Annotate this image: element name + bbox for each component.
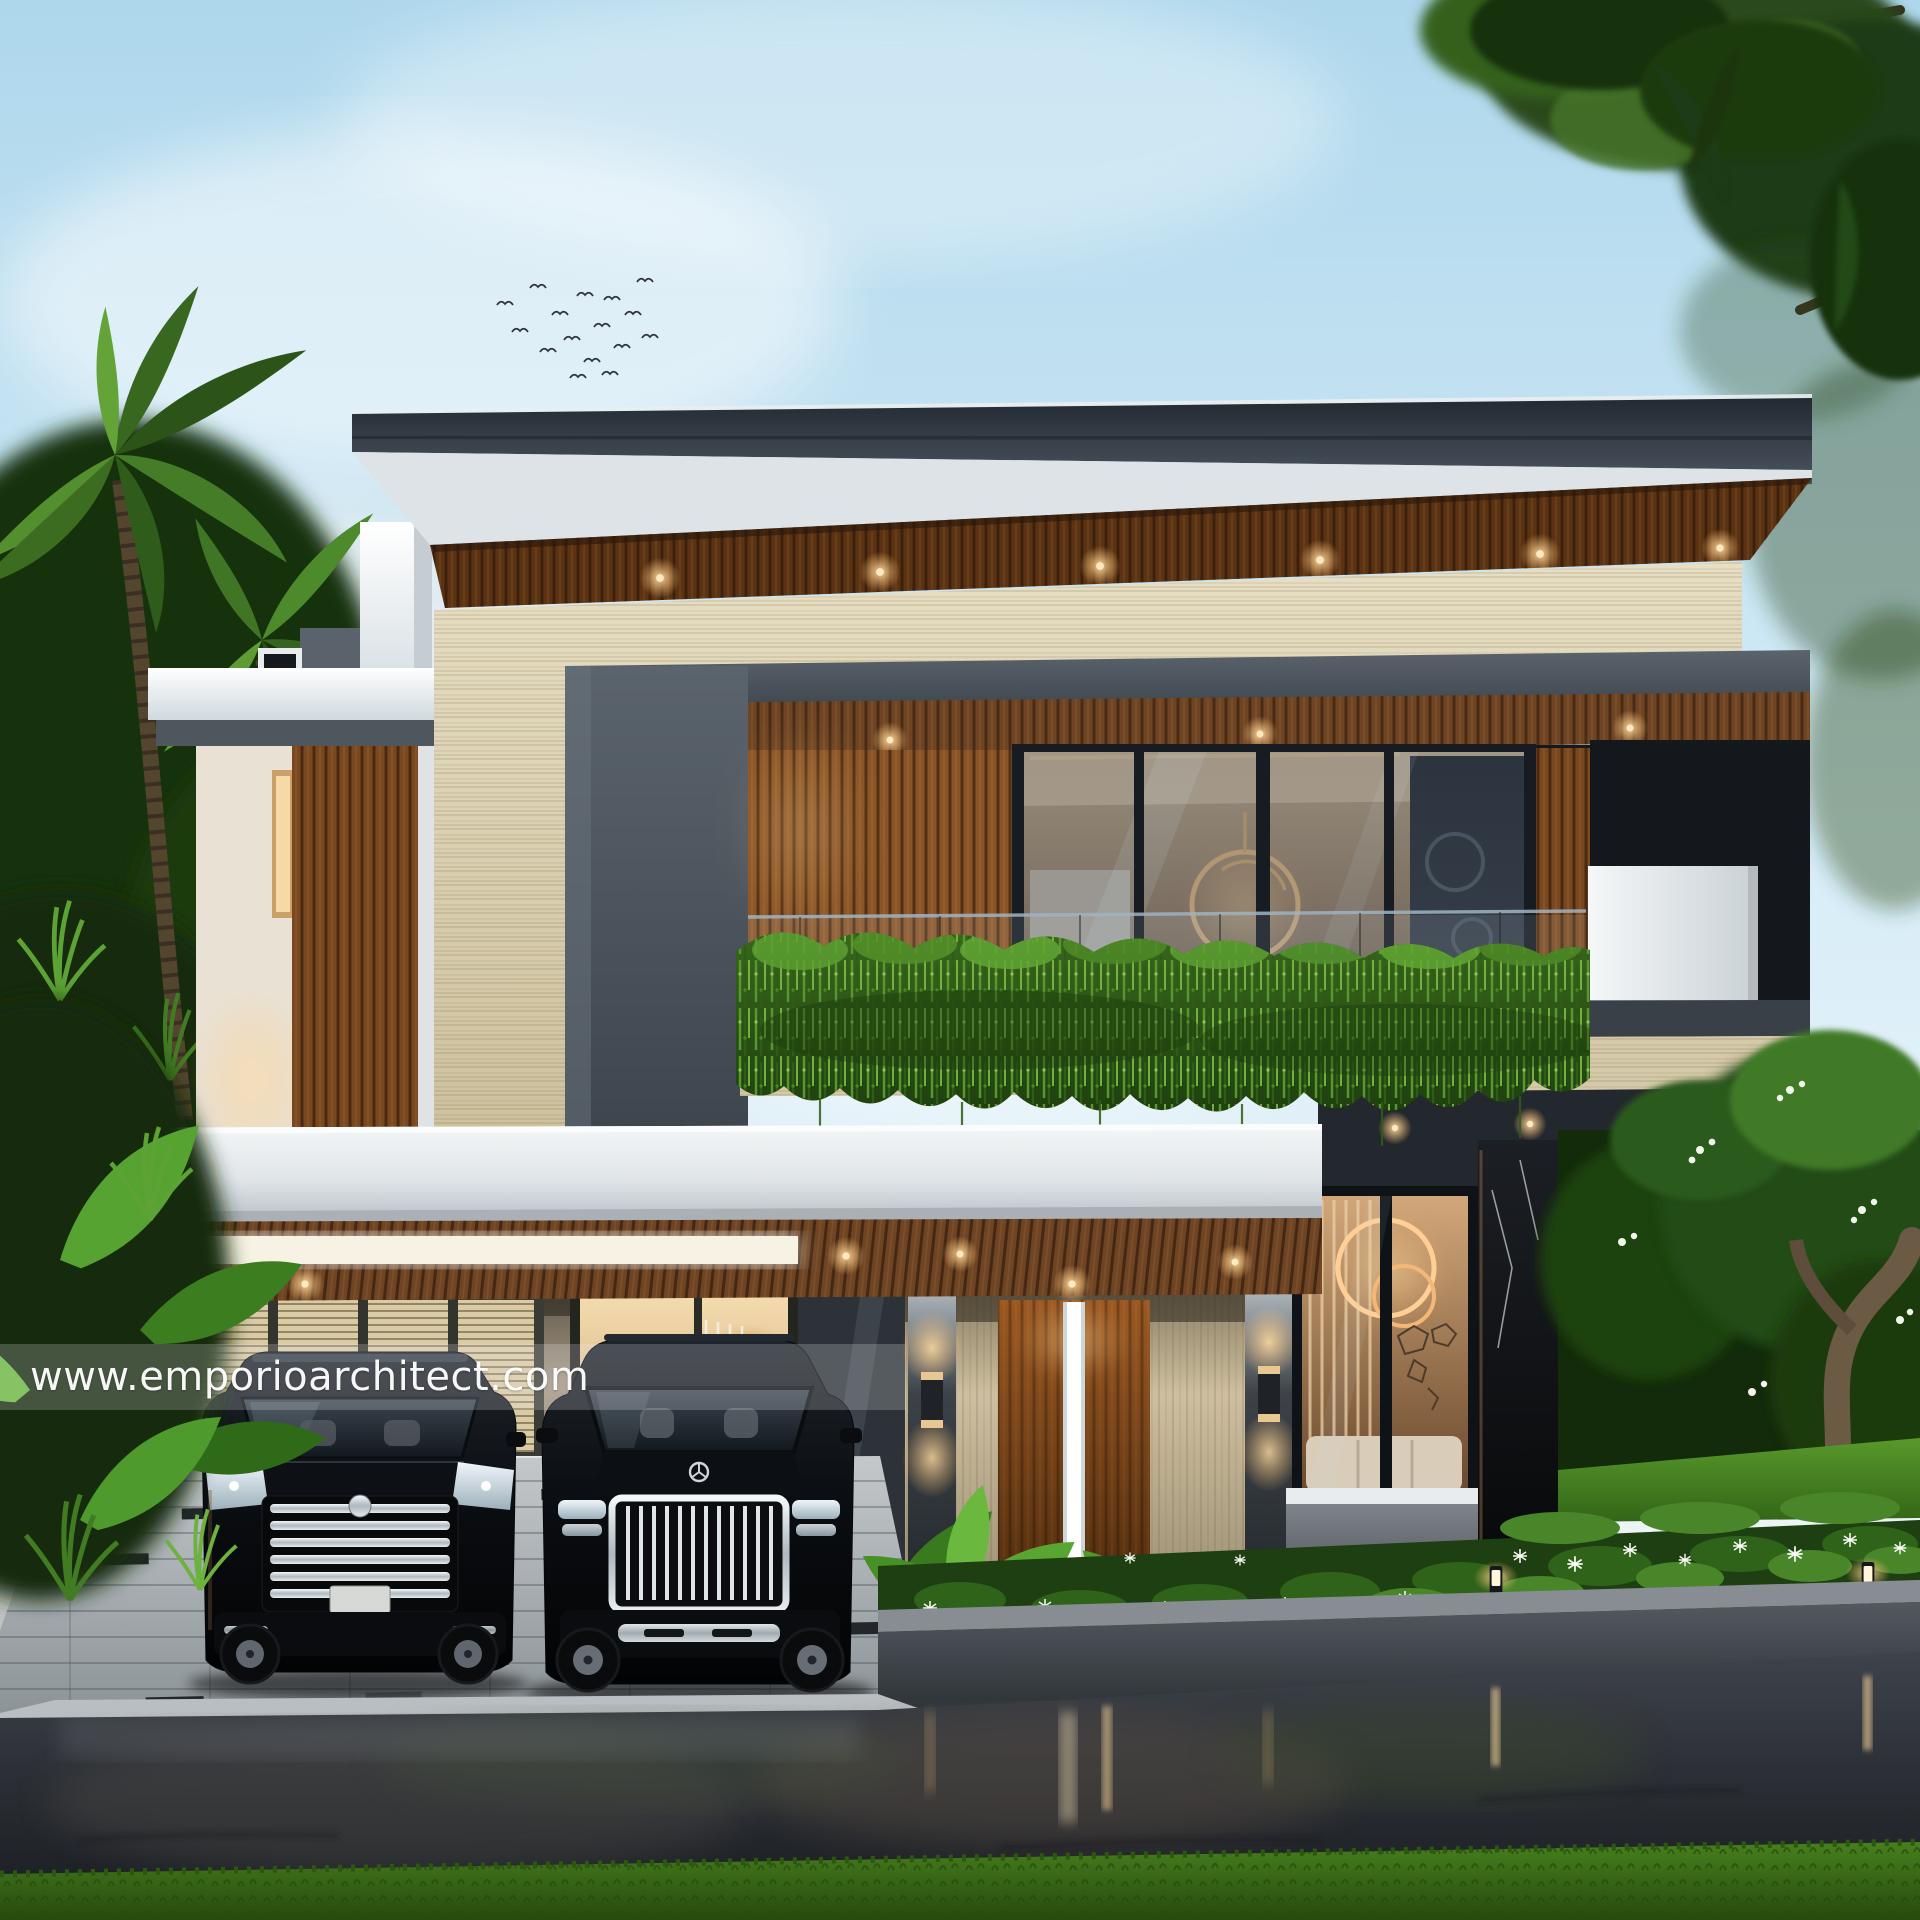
timber-slat-screen [292,746,418,1136]
watermark-bar: www.emporioarchitect.com [0,1344,905,1410]
mpv-logo [349,1495,371,1517]
watermark-text: www.emporioarchitect.com [0,1354,589,1400]
upper-floor [434,562,1810,1156]
white-box-volume [1588,866,1758,1006]
concrete-pillar-left [565,666,748,1136]
villa-render-scene [0,0,1920,1920]
annex-parapet [148,668,444,720]
render-viewport: www.emporioarchitect.com [0,0,1920,1920]
annex-window [276,776,290,912]
recessed-light-panel [168,1236,798,1264]
mpv-plate [330,1586,390,1613]
